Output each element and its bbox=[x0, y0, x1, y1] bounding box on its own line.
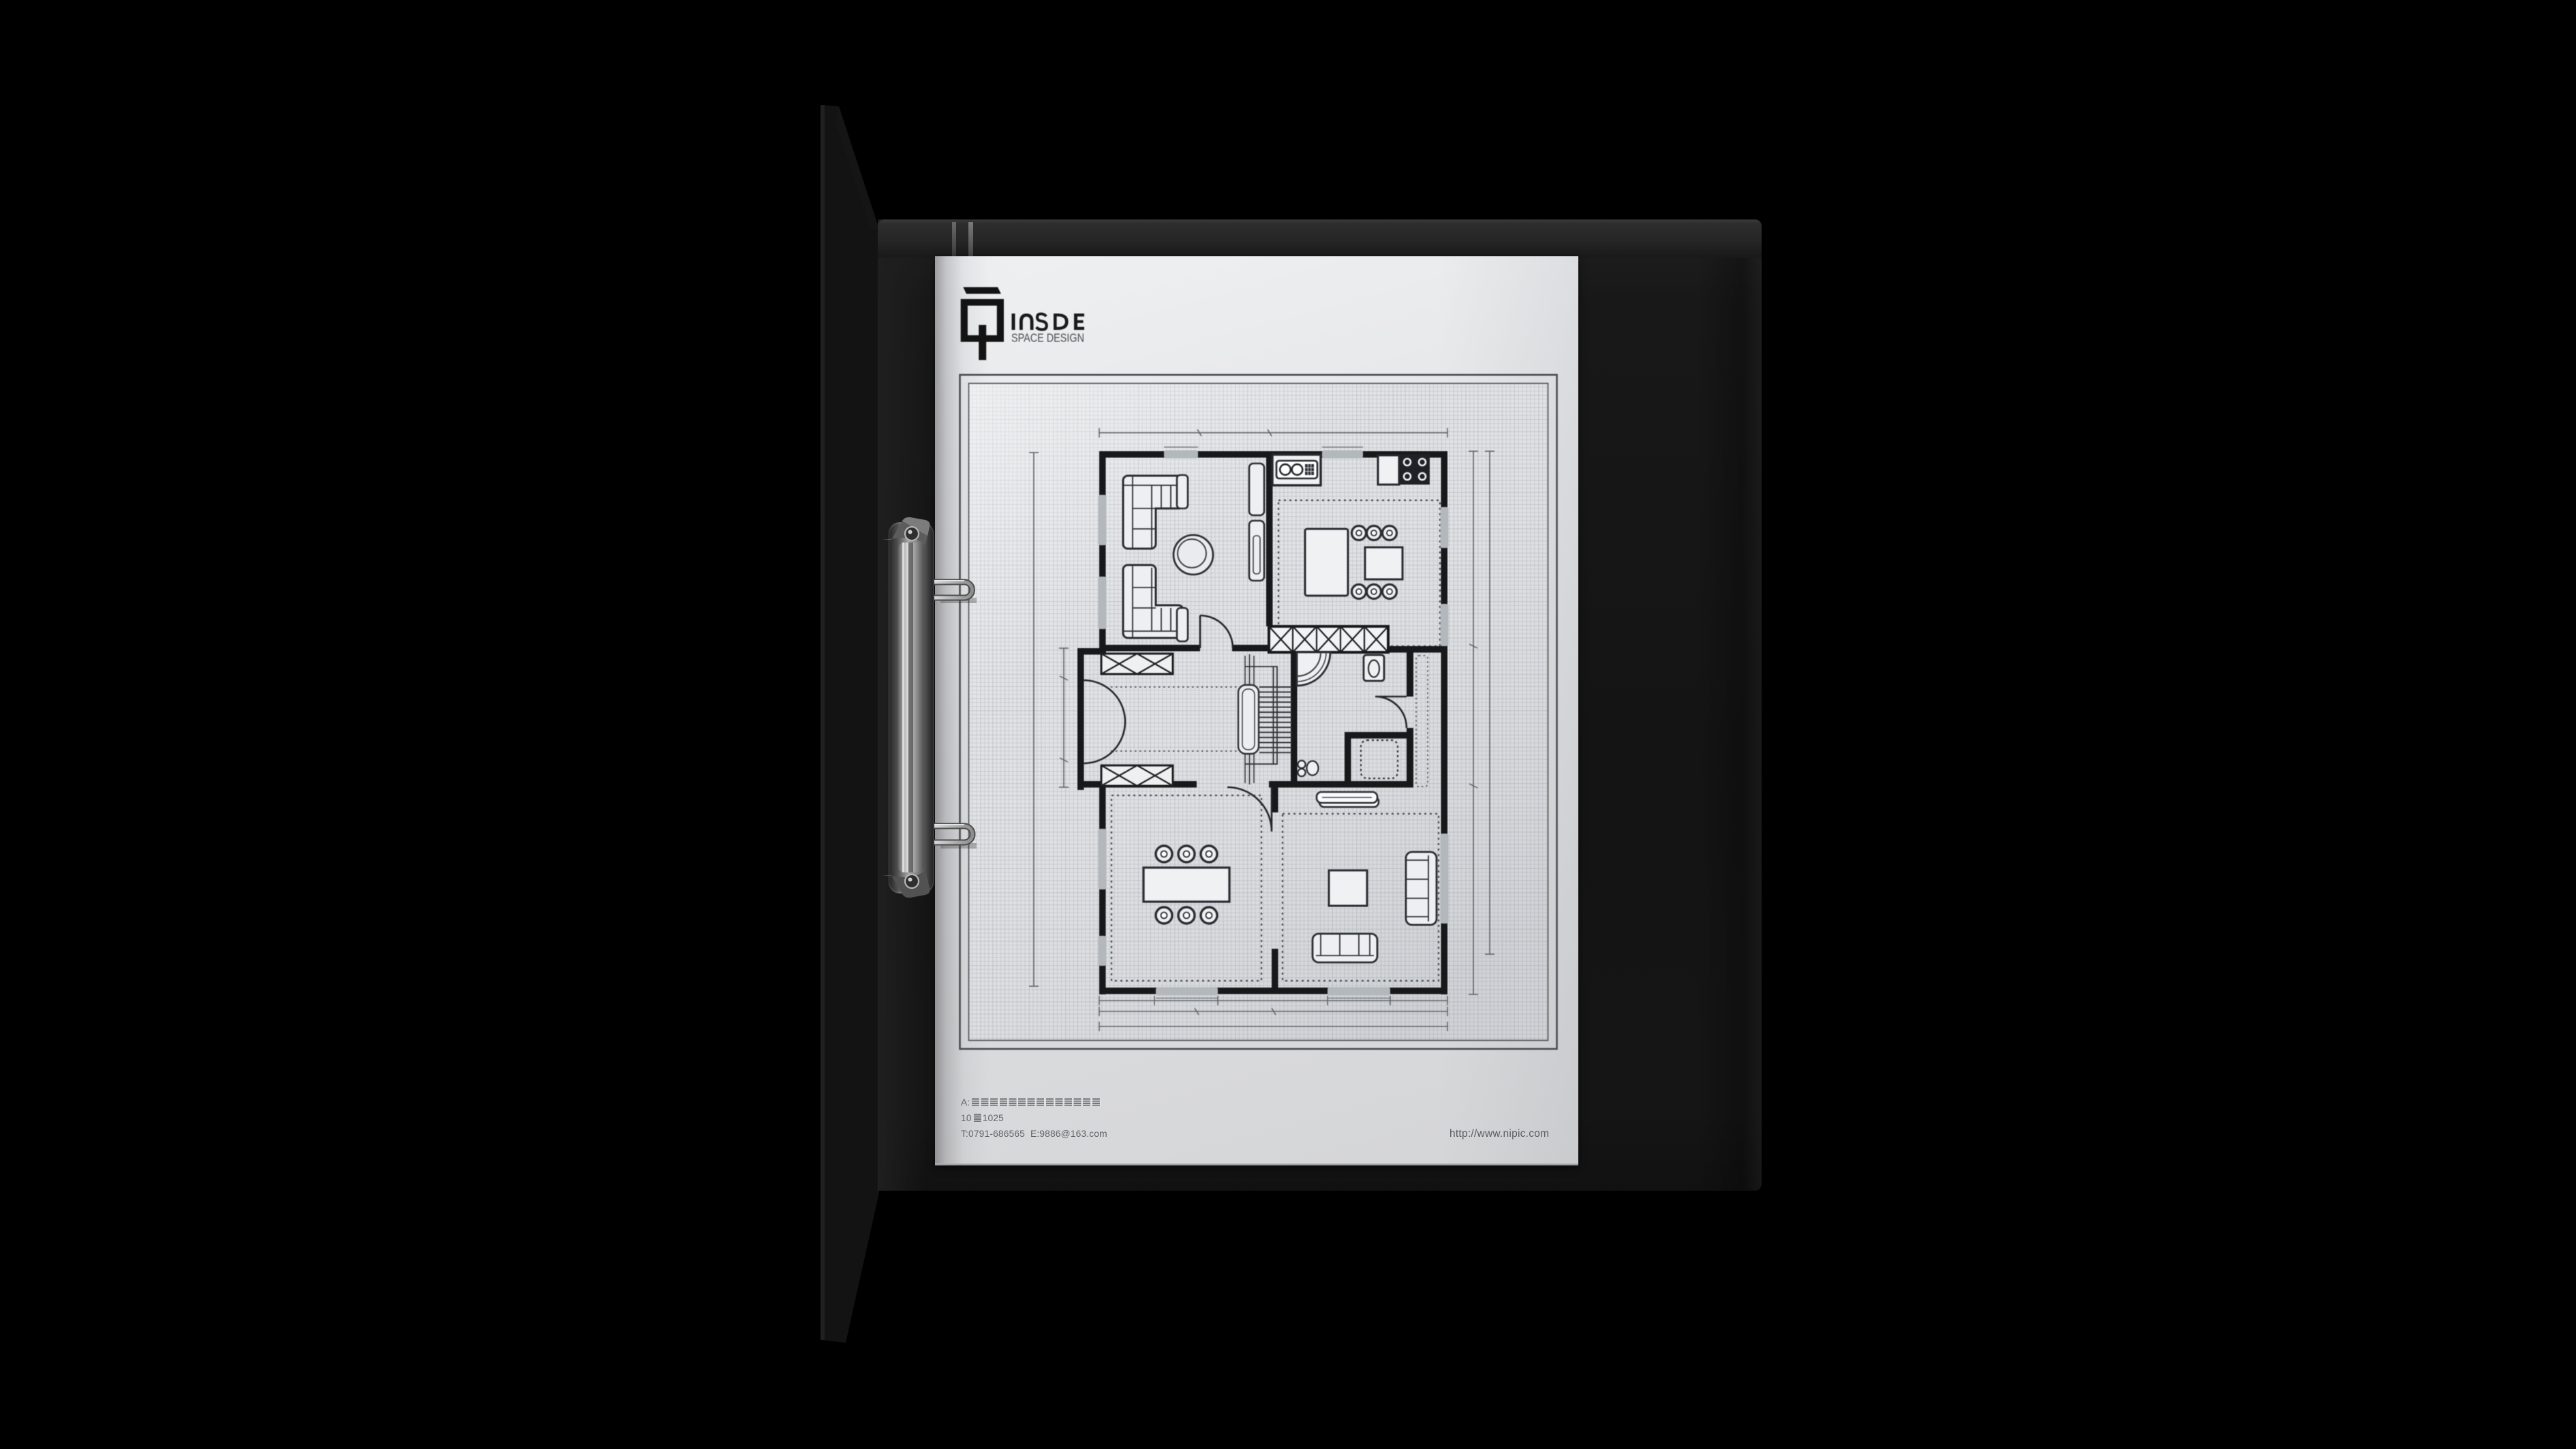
svg-text:SPACE DESIGN: SPACE DESIGN bbox=[1011, 331, 1084, 344]
